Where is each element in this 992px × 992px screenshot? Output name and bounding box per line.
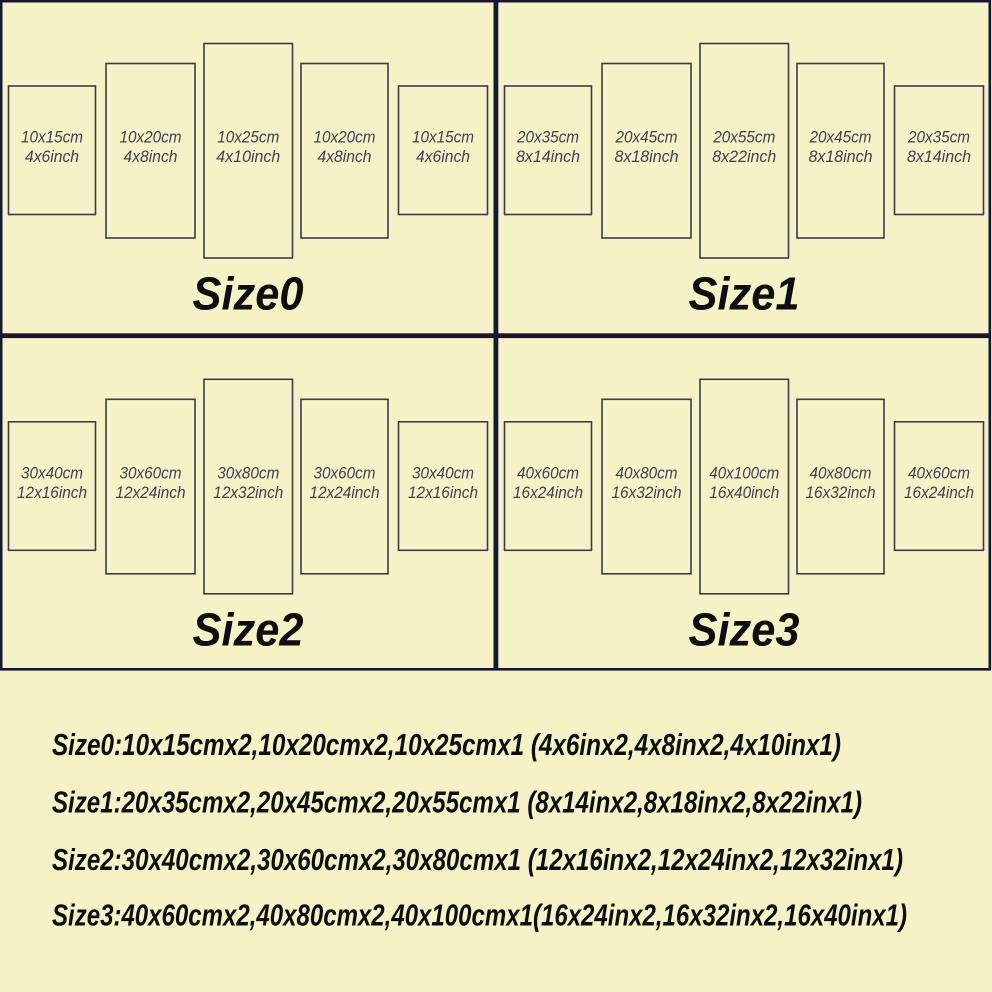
svg-text:30x80cm: 30x80cm [217, 463, 279, 482]
svg-text:4x10inch: 4x10inch [216, 147, 280, 166]
svg-text:4x6inch: 4x6inch [416, 147, 470, 166]
svg-text:8x18inch: 8x18inch [809, 147, 873, 166]
svg-text:16x24inch: 16x24inch [513, 483, 583, 502]
svg-text:40x80cm: 40x80cm [616, 463, 678, 482]
svg-text:12x24inch: 12x24inch [116, 483, 186, 502]
svg-text:12x32inch: 12x32inch [213, 483, 283, 502]
svg-text:10x15cm: 10x15cm [21, 128, 83, 147]
svg-text:40x100cm: 40x100cm [709, 463, 779, 482]
svg-text:30x40cm: 30x40cm [412, 463, 474, 482]
svg-text:20x45cm: 20x45cm [809, 128, 872, 147]
svg-text:16x24inch: 16x24inch [904, 483, 974, 502]
svg-text:Size2: Size2 [193, 603, 304, 655]
svg-text:10x15cm: 10x15cm [412, 128, 474, 147]
svg-text:40x60cm: 40x60cm [908, 463, 970, 482]
svg-text:4x8inch: 4x8inch [124, 147, 178, 166]
svg-text:Size3:40x60cmx2,40x80cmx2,40x1: Size3:40x60cmx2,40x80cmx2,40x100cmx1(16x… [52, 898, 907, 933]
svg-text:20x45cm: 20x45cm [615, 128, 678, 147]
svg-text:16x32inch: 16x32inch [612, 483, 682, 502]
svg-text:16x40inch: 16x40inch [709, 483, 779, 502]
svg-text:Size0: Size0 [193, 268, 304, 320]
svg-text:Size0:10x15cmx2,10x20cmx2,10x2: Size0:10x15cmx2,10x20cmx2,10x25cmx1 (4x6… [52, 727, 841, 762]
svg-text:Size1: Size1 [689, 268, 800, 320]
svg-text:20x55cm: 20x55cm [712, 128, 775, 147]
svg-text:Size1:20x35cmx2,20x45cmx2,20x5: Size1:20x35cmx2,20x45cmx2,20x55cmx1 (8x1… [52, 785, 862, 820]
svg-text:20x35cm: 20x35cm [516, 128, 579, 147]
svg-text:Size3: Size3 [689, 603, 800, 655]
svg-text:10x25cm: 10x25cm [217, 128, 279, 147]
svg-text:4x6inch: 4x6inch [25, 147, 79, 166]
svg-text:30x60cm: 30x60cm [314, 463, 376, 482]
svg-text:10x20cm: 10x20cm [120, 128, 182, 147]
svg-text:4x8inch: 4x8inch [318, 147, 372, 166]
svg-text:30x60cm: 30x60cm [120, 463, 182, 482]
svg-text:20x35cm: 20x35cm [907, 128, 970, 147]
svg-text:40x80cm: 40x80cm [810, 463, 872, 482]
svg-text:16x32inch: 16x32inch [806, 483, 876, 502]
svg-text:8x18inch: 8x18inch [615, 147, 679, 166]
svg-text:12x16inch: 12x16inch [408, 483, 478, 502]
svg-text:40x60cm: 40x60cm [517, 463, 579, 482]
svg-text:Size2:30x40cmx2,30x60cmx2,30x8: Size2:30x40cmx2,30x60cmx2,30x80cmx1 (12x… [52, 842, 903, 877]
svg-text:8x22inch: 8x22inch [712, 147, 776, 166]
svg-text:8x14inch: 8x14inch [907, 147, 971, 166]
svg-text:12x16inch: 12x16inch [17, 483, 87, 502]
svg-text:8x14inch: 8x14inch [516, 147, 580, 166]
svg-text:10x20cm: 10x20cm [314, 128, 376, 147]
svg-text:12x24inch: 12x24inch [310, 483, 380, 502]
svg-text:30x40cm: 30x40cm [21, 463, 83, 482]
